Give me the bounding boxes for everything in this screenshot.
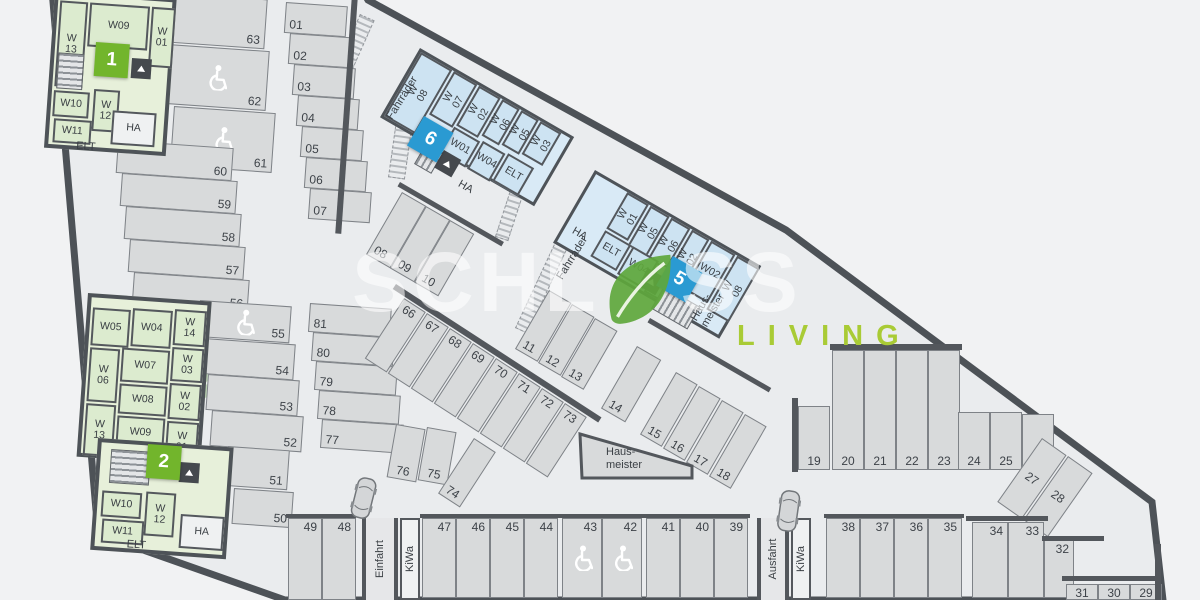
stall-45: 45 — [490, 518, 524, 598]
wheelchair-icon — [205, 64, 229, 91]
stall-34: 34 — [972, 522, 1008, 598]
stall-35: 35 — [928, 518, 962, 598]
room-label: W04 — [141, 322, 163, 334]
stall-number: 44 — [536, 519, 557, 535]
stall-number: 39 — [726, 519, 747, 535]
room-label: W 03 — [528, 131, 555, 156]
room-w10-b2: W10 — [101, 490, 143, 519]
room-label: W11 — [61, 125, 83, 137]
stall-number: 35 — [940, 519, 961, 535]
room-label: W 14 — [181, 317, 198, 340]
stall-38: 38 — [826, 518, 860, 598]
stall-number: 49 — [300, 519, 321, 535]
stall-number: 30 — [1103, 585, 1124, 600]
stall-number: 57 — [221, 261, 243, 279]
stall-number: 02 — [289, 47, 311, 65]
badge-2: 2 — [146, 444, 182, 480]
elevator-icon — [131, 58, 152, 79]
wall — [1155, 544, 1161, 600]
stall-number: 51 — [265, 471, 287, 489]
room-label: HA — [126, 123, 141, 135]
room-label: W 03 — [178, 354, 195, 377]
stall-number: 04 — [297, 109, 319, 127]
stall-number: 20 — [837, 453, 858, 469]
kiwa-label: KiWa — [404, 546, 416, 572]
wall — [824, 514, 964, 518]
stall-number: 21 — [869, 453, 890, 469]
stall-number: 25 — [995, 453, 1016, 469]
room-ha-b2: HA — [179, 514, 225, 551]
stall-number: 43 — [580, 519, 601, 535]
stall-20: 20 — [832, 350, 864, 470]
stall-30: 30 — [1098, 584, 1130, 600]
stall-number: 59 — [213, 195, 235, 213]
stall-number: 53 — [275, 397, 297, 415]
stall-number: 79 — [315, 373, 337, 391]
room-elt-a: ELT — [76, 140, 96, 153]
stall-41: 41 — [646, 518, 680, 598]
hausmeister-room-label: Haus- meister — [606, 446, 654, 471]
stall-number: 23 — [933, 453, 954, 469]
storage-block-a: W 13 W09 W 01 W10 W 12 W11 HA ELT — [44, 0, 177, 156]
wall — [420, 514, 560, 518]
stall-44: 44 — [524, 518, 558, 598]
stall-42: 42 — [602, 518, 642, 598]
stall-25: 25 — [990, 412, 1022, 470]
wall — [830, 344, 962, 350]
stall-number: 81 — [309, 315, 331, 333]
stall-62: 62 — [164, 44, 270, 111]
badge-1: 1 — [94, 42, 130, 78]
stall-number: 31 — [1071, 585, 1092, 600]
room-w01-a: W 01 — [148, 7, 176, 69]
wall — [558, 514, 646, 518]
wall — [644, 514, 750, 518]
room-w12-b2: W 12 — [143, 492, 176, 538]
stall-number: 27 — [1018, 466, 1045, 492]
stall-number: 38 — [838, 519, 859, 535]
room-label: W 02 — [176, 390, 193, 413]
stall-22: 22 — [896, 350, 928, 470]
room-label: W 01 — [153, 26, 170, 49]
stall-number: 76 — [391, 461, 415, 481]
stall-48: 48 — [322, 518, 356, 600]
stall-number: 34 — [986, 523, 1007, 539]
wall — [1042, 536, 1104, 541]
stall-number: 33 — [1022, 523, 1043, 539]
kiwa-label: KiWa — [795, 546, 807, 572]
stall-number: 37 — [872, 519, 893, 535]
ramp-label: Einfahrt — [374, 540, 386, 578]
stall-number: 54 — [271, 361, 293, 379]
stall-number: 06 — [305, 171, 327, 189]
stall-51: 51 — [225, 446, 290, 490]
stall-24: 24 — [958, 412, 990, 470]
wheelchair-icon — [233, 308, 257, 335]
stall-number: 29 — [1135, 585, 1156, 600]
stall-37: 37 — [860, 518, 894, 598]
stall-33: 33 — [1008, 522, 1044, 598]
room-label: W 12 — [151, 503, 168, 526]
stall-55: 55 — [197, 300, 291, 343]
room-label: W04 — [474, 151, 498, 171]
stall-39: 39 — [714, 518, 748, 598]
stall-number: 05 — [301, 140, 323, 158]
stall-50: 50 — [231, 488, 293, 528]
stall-number: 40 — [692, 519, 713, 535]
stall-number: 61 — [249, 154, 271, 172]
stairs-icon — [56, 52, 84, 90]
stall-number: 62 — [243, 92, 265, 110]
stall-40: 40 — [680, 518, 714, 598]
room-label: W09 — [129, 427, 151, 439]
stall-number: 52 — [279, 433, 301, 451]
room-w03-b: W 03 — [170, 347, 204, 383]
stall-number: 01 — [285, 16, 307, 34]
entrance-ramp: Einfahrt — [362, 518, 398, 600]
stall-31: 31 — [1066, 584, 1098, 600]
room-label: W 07 — [440, 87, 467, 112]
stall-46: 46 — [456, 518, 490, 598]
room-w06-b: W 06 — [86, 347, 120, 403]
room-w10-a: W10 — [52, 90, 90, 118]
stall-02: 02 — [288, 33, 352, 68]
stall-number: 45 — [502, 519, 523, 535]
wall — [1062, 576, 1160, 581]
stall-number: 60 — [209, 162, 231, 180]
wall — [966, 516, 1048, 521]
room-label: W05 — [99, 321, 121, 333]
stall-number: 46 — [468, 519, 489, 535]
stall-06: 06 — [304, 157, 368, 192]
room-label: W10 — [60, 98, 82, 110]
stall-number: 78 — [318, 402, 340, 420]
wheelchair-icon — [571, 545, 593, 571]
storage-block-b: W05 W04 W 14 W 06 W07 W 03 W08 W 02 W09 … — [77, 293, 212, 465]
wheelchair-icon — [611, 545, 633, 571]
ramp-label: Ausfahrt — [767, 539, 779, 580]
room-w05-b: W05 — [90, 307, 131, 348]
room-w08-b: W08 — [118, 383, 168, 416]
stroller-room: KiWa — [400, 518, 420, 600]
wall — [286, 514, 356, 518]
room-w07-b: W07 — [120, 348, 170, 385]
stall-number: 63 — [242, 30, 264, 48]
wall — [792, 398, 798, 472]
stall-number: 41 — [658, 519, 679, 535]
stall-number: 24 — [963, 453, 984, 469]
stall-number: 58 — [217, 228, 239, 246]
room-label: ELT — [502, 165, 524, 184]
room-elt-b2: ELT — [126, 538, 146, 551]
stall-number: 03 — [293, 78, 315, 96]
stall-number: 28 — [1044, 484, 1071, 510]
room-label: W09 — [107, 20, 129, 32]
stall-number: 55 — [267, 324, 289, 342]
stall-19: 19 — [798, 406, 830, 470]
stall-number: 47 — [434, 519, 455, 535]
room-w14-b: W 14 — [173, 309, 207, 347]
floor-plan: W 13 W09 W 01 W10 W 12 W11 HA ELT 1 63 6… — [0, 0, 1200, 600]
stall-number: 19 — [803, 453, 824, 469]
room-label: ELT — [600, 241, 622, 260]
stall-47: 47 — [422, 518, 456, 598]
elevator-icon — [179, 462, 200, 483]
room-label: W11 — [112, 526, 134, 538]
room-label: HA — [194, 526, 209, 538]
room-label: W08 — [132, 394, 154, 406]
room-w02-b: W 02 — [167, 383, 201, 421]
stall-number: 07 — [309, 202, 331, 220]
room-label: W 06 — [95, 364, 112, 387]
stall-05: 05 — [300, 126, 364, 161]
stall-number: 36 — [906, 519, 927, 535]
stall-49: 49 — [288, 518, 322, 600]
stall-36: 36 — [894, 518, 928, 598]
stall-43: 43 — [562, 518, 602, 598]
stall-number: 32 — [1052, 541, 1073, 557]
stairs-icon — [109, 449, 151, 486]
stall-number: 77 — [321, 431, 343, 449]
stall-number: 42 — [620, 519, 641, 535]
stall-23: 23 — [928, 350, 960, 470]
stall-21: 21 — [864, 350, 896, 470]
stall-number: 80 — [312, 344, 334, 362]
room-label: W07 — [134, 360, 156, 372]
room-ha-a: HA — [110, 110, 156, 147]
stall-number: 22 — [901, 453, 922, 469]
room-w04-b: W04 — [130, 308, 173, 349]
room-label: W10 — [110, 499, 132, 511]
stall-number: 75 — [422, 464, 446, 484]
stall-01: 01 — [284, 2, 348, 37]
